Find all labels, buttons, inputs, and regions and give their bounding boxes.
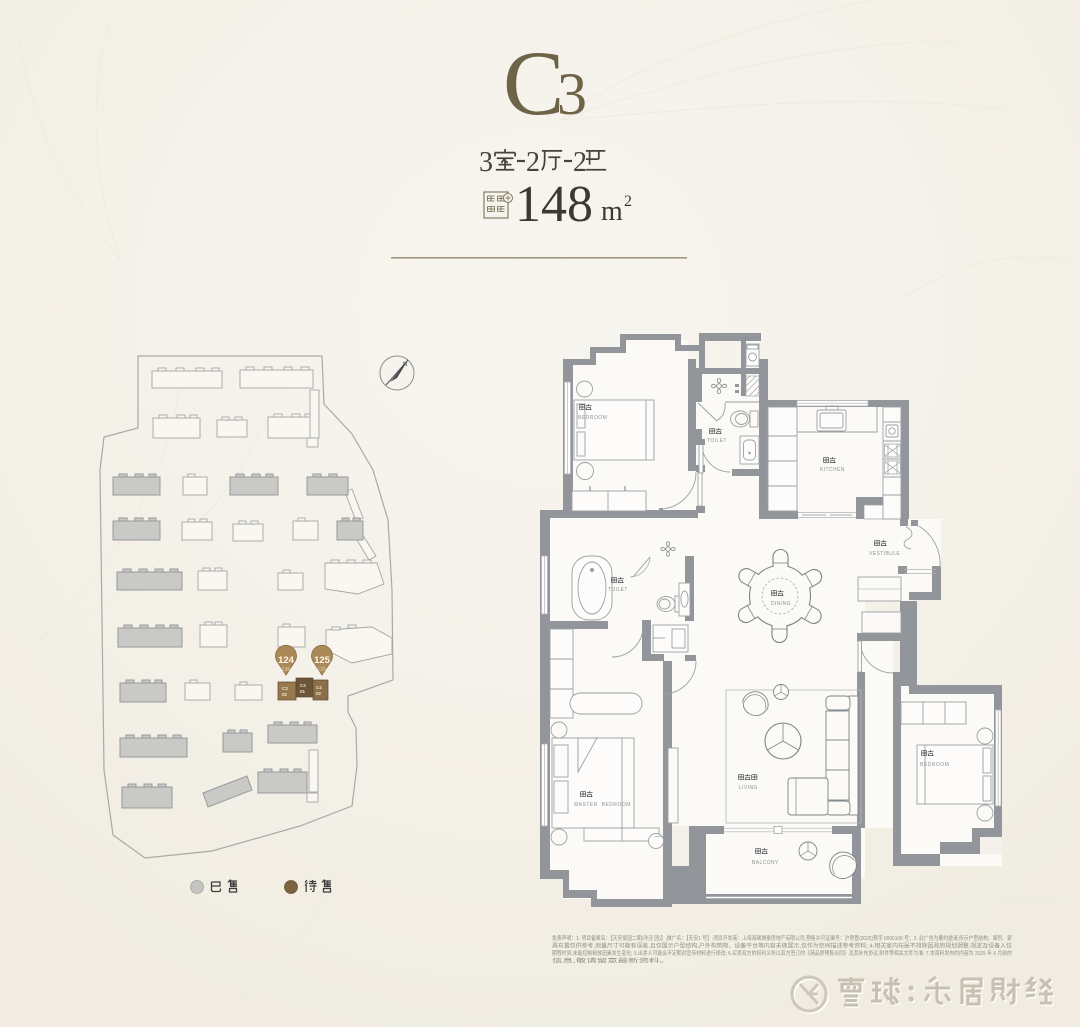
svg-text:148: 148 — [515, 176, 593, 233]
svg-text:125: 125 — [314, 655, 331, 666]
svg-text:C: C — [503, 32, 564, 134]
svg-text:124: 124 — [278, 655, 295, 666]
svg-text:MASTER BEDROOM: MASTER BEDROOM — [574, 802, 631, 808]
svg-text:TOILET: TOILET — [707, 438, 727, 444]
svg-text:02: 02 — [282, 692, 288, 697]
svg-text:2: 2 — [573, 147, 587, 178]
svg-text:N: N — [403, 362, 407, 368]
svg-text:m: m — [601, 196, 623, 227]
svg-text:BALCONY: BALCONY — [752, 860, 779, 866]
svg-text:BEDROOM: BEDROOM — [920, 762, 949, 768]
svg-text:BEDROOM: BEDROOM — [578, 415, 607, 421]
svg-text:13F: 13F — [281, 667, 291, 673]
svg-text:信息,敬请留意最新资料。: 信息,敬请留意最新资料。 — [552, 957, 670, 965]
svg-text:具布置仅供参考,测量尺寸可能有误差,且仅展示户型结构,户外构: 具布置仅供参考,测量尺寸可能有误差,且仅展示户型结构,户外构筑物、设备平台等内容… — [552, 942, 1012, 950]
svg-text:免责声明：1. 项目备案名：【天安豪园二期(洋泾 园)】,推: 免责声明：1. 项目备案名：【天安豪园二期(洋泾 园)】,推广名：【天安1 号】… — [552, 934, 1012, 942]
svg-text:VESTIBULE: VESTIBULE — [869, 551, 900, 557]
svg-text:13F: 13F — [317, 667, 327, 673]
svg-text:3: 3 — [557, 61, 587, 127]
svg-text:LIVING: LIVING — [739, 785, 758, 791]
svg-text:期程时间,未能控制释放因素发生变化; 5.出卖人可能会不定期: 期程时间,未能控制释放因素发生变化; 5.出卖人可能会不定期对宣传材料进行修改;… — [552, 949, 1012, 957]
svg-text:DINING: DINING — [771, 601, 791, 607]
svg-text:C3: C3 — [282, 686, 288, 691]
svg-text:KITCHEN: KITCHEN — [820, 467, 845, 473]
svg-text:3: 3 — [479, 147, 493, 178]
svg-text:02: 02 — [316, 691, 322, 696]
svg-text:C4: C4 — [300, 683, 306, 688]
svg-text:2: 2 — [526, 147, 540, 178]
svg-text:2: 2 — [624, 193, 632, 210]
svg-text:TOILET: TOILET — [608, 587, 628, 593]
svg-text:01: 01 — [300, 689, 306, 694]
svg-text:C4: C4 — [316, 685, 322, 690]
